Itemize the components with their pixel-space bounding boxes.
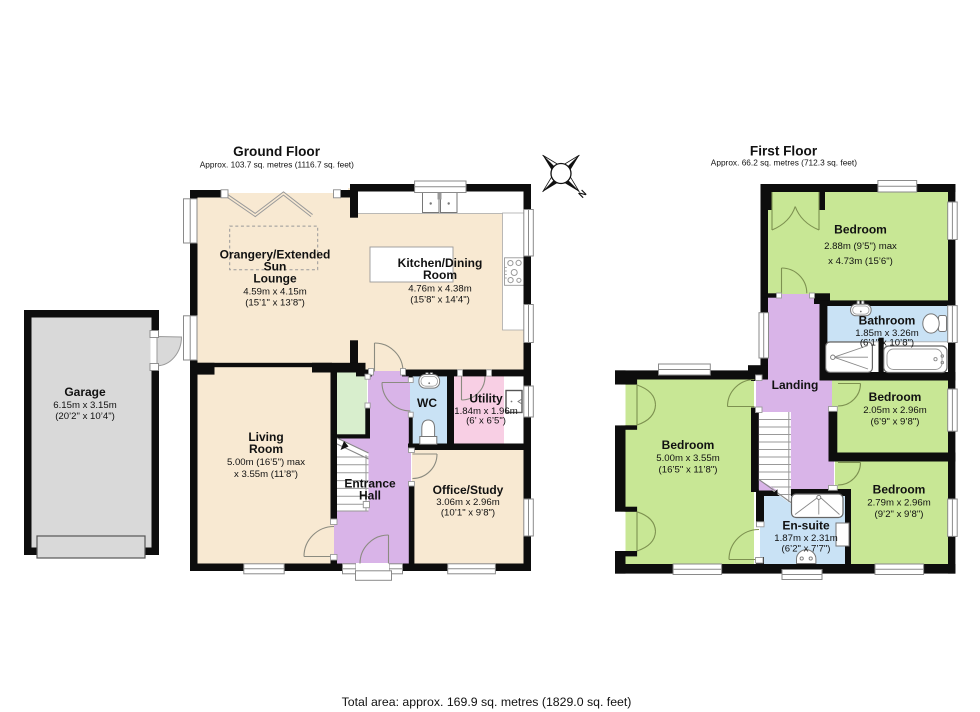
svg-text:4.59m x 4.15m: 4.59m x 4.15m [243, 287, 306, 298]
svg-text:Bedroom: Bedroom [873, 483, 926, 497]
svg-text:Bathroom: Bathroom [859, 314, 916, 328]
svg-text:Utility: Utility [469, 392, 503, 406]
svg-text:(15’8" x 14’4"): (15’8" x 14’4") [410, 295, 470, 306]
svg-text:Bedroom: Bedroom [662, 438, 715, 452]
svg-text:x 4.73m (15’6"): x 4.73m (15’6") [828, 256, 893, 267]
svg-text:Hall: Hall [359, 489, 381, 503]
svg-text:(10’1" x 9’8"): (10’1" x 9’8") [441, 508, 495, 519]
svg-text:x 3.55m (11’8"): x 3.55m (11’8") [234, 469, 298, 480]
svg-text:First Floor: First Floor [750, 144, 818, 159]
svg-text:(16’5" x 11’8"): (16’5" x 11’8") [659, 465, 718, 476]
svg-text:(6’9" x 9’8"): (6’9" x 9’8") [871, 417, 920, 428]
svg-text:3.06m x 2.96m: 3.06m x 2.96m [436, 497, 499, 508]
svg-text:Bedroom: Bedroom [869, 390, 922, 404]
svg-text:(9’2" x 9’8"): (9’2" x 9’8") [875, 509, 924, 520]
svg-text:En-suite: En-suite [782, 519, 830, 533]
svg-text:Garage: Garage [64, 385, 106, 399]
svg-text:6.15m x 3.15m: 6.15m x 3.15m [53, 400, 116, 411]
svg-text:Room: Room [423, 268, 457, 282]
svg-text:(15’1" x 13’8"): (15’1" x 13’8") [245, 298, 305, 309]
svg-text:Bedroom: Bedroom [834, 223, 887, 237]
svg-text:(6’1" x 10’8"): (6’1" x 10’8") [860, 338, 914, 349]
svg-text:2.05m x 2.96m: 2.05m x 2.96m [863, 405, 926, 416]
svg-text:5.00m x 3.55m: 5.00m x 3.55m [656, 453, 719, 464]
svg-text:2.88m (9’5") max: 2.88m (9’5") max [824, 241, 897, 252]
svg-text:5.00m (16’5") max: 5.00m (16’5") max [227, 457, 305, 468]
svg-text:Landing: Landing [772, 378, 819, 392]
svg-text:Lounge: Lounge [253, 272, 297, 286]
svg-text:2.79m x 2.96m: 2.79m x 2.96m [867, 498, 930, 509]
svg-text:Ground Floor: Ground Floor [233, 144, 321, 159]
svg-text:(6’ x 6’5"): (6’ x 6’5") [466, 416, 506, 427]
svg-text:Total area: approx. 169.9 sq.: Total area: approx. 169.9 sq. metres (18… [342, 695, 632, 709]
svg-text:1.87m x 2.31m: 1.87m x 2.31m [774, 533, 837, 544]
svg-text:Room: Room [249, 442, 283, 456]
svg-text:WC: WC [417, 396, 437, 410]
svg-text:Office/Study: Office/Study [433, 483, 504, 497]
svg-text:4.76m x 4.38m: 4.76m x 4.38m [408, 284, 471, 295]
svg-text:Approx. 103.7 sq. metres (1116: Approx. 103.7 sq. metres (1116.7 sq. fee… [200, 160, 354, 170]
svg-text:(20’2" x 10’4"): (20’2" x 10’4") [55, 411, 115, 422]
svg-text:Approx. 66.2 sq. metres (712.3: Approx. 66.2 sq. metres (712.3 sq. feet) [711, 158, 857, 168]
svg-text:(6’2" x 7’7"): (6’2" x 7’7") [782, 544, 831, 555]
